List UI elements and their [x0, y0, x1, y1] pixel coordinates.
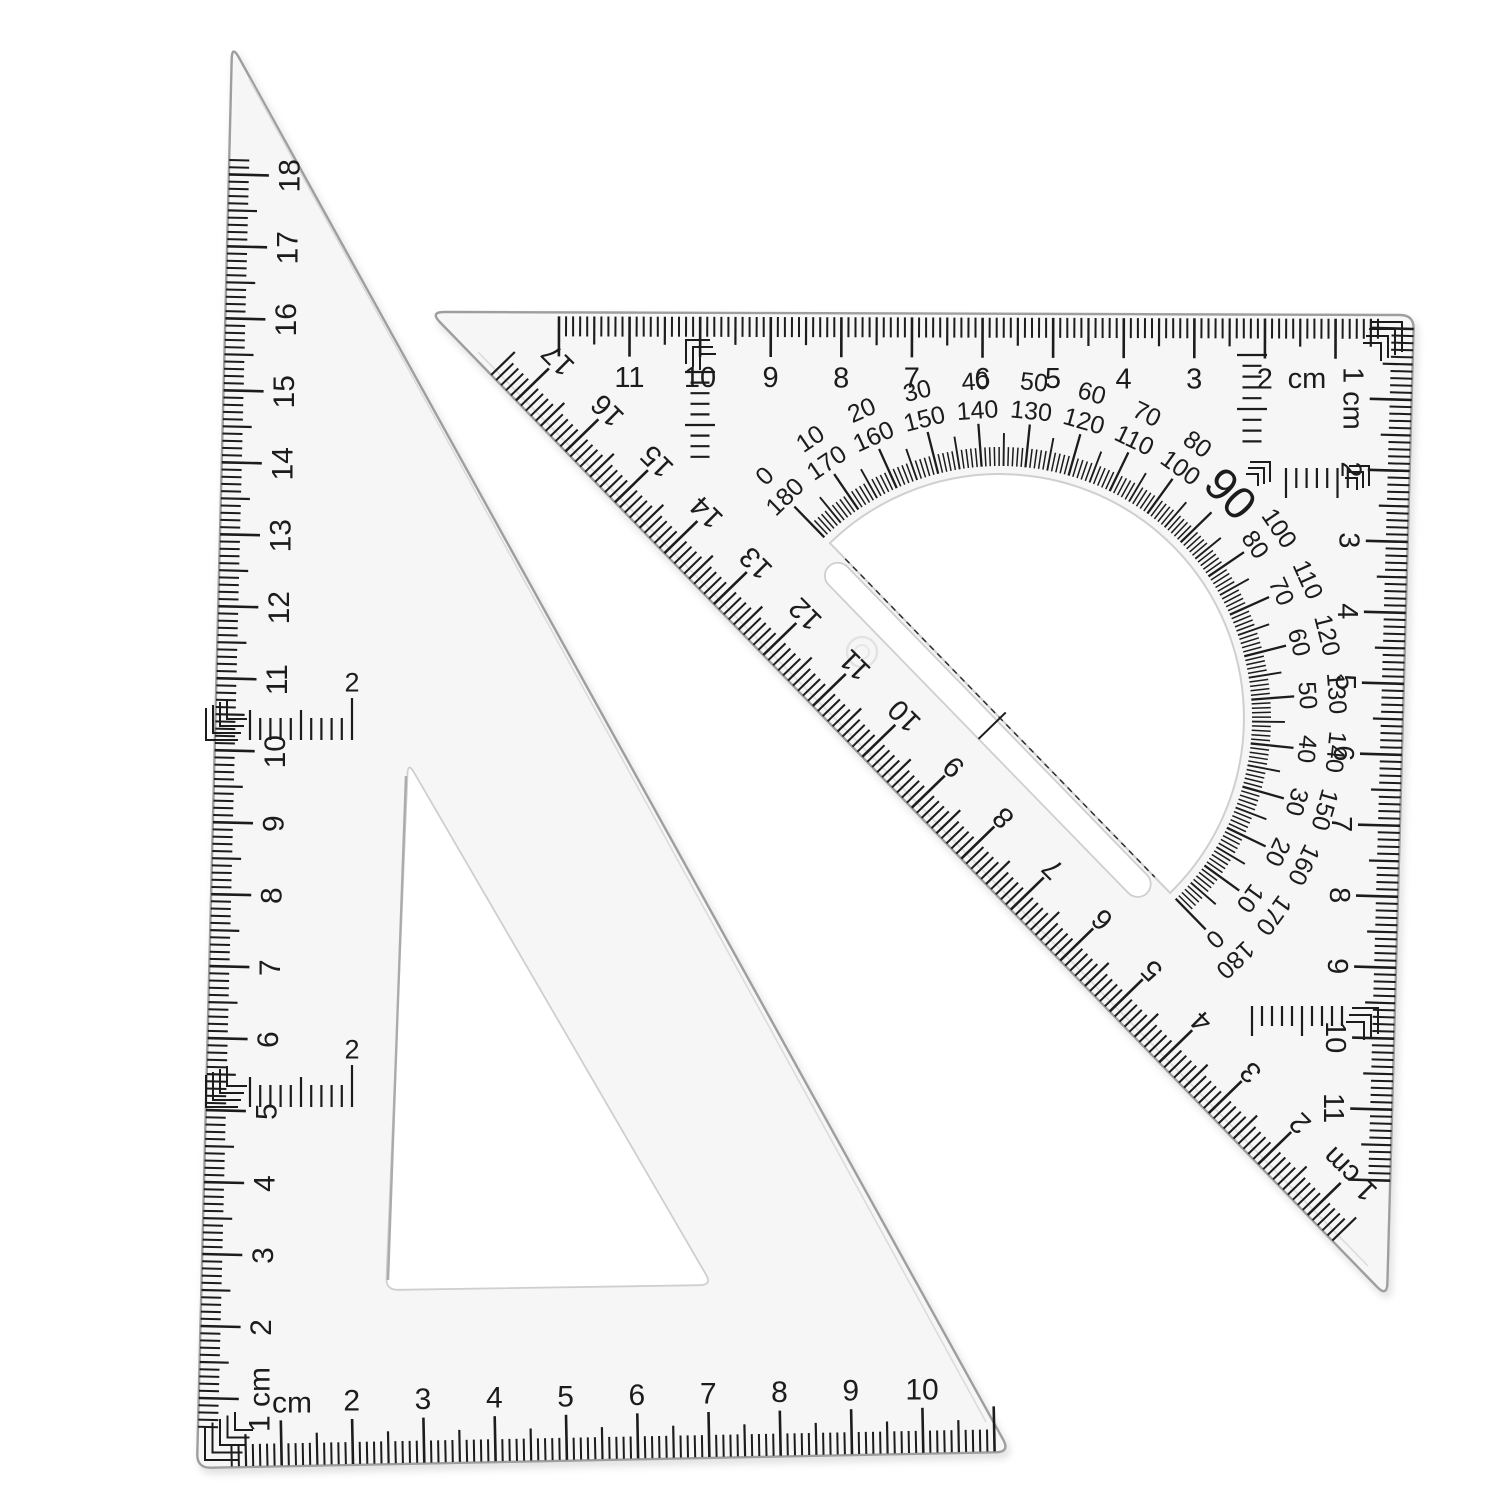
scale-number: 4	[1116, 363, 1132, 395]
scale-number: 3	[1333, 532, 1365, 548]
degree-label-outer: 140	[1319, 730, 1351, 774]
scale-number: 18	[273, 159, 306, 192]
degree-label-inner: 50	[1292, 681, 1322, 711]
scale-number: 11	[614, 362, 644, 394]
scale-number: 3	[247, 1247, 280, 1264]
scale-number: 9	[258, 815, 291, 832]
inner-scale-label: 2	[344, 1034, 359, 1064]
degree-label-outer: 50	[1019, 367, 1049, 398]
set-squares-photo: 1 cm234567891011121314151617182345678910…	[0, 0, 1500, 1500]
scale-number: 5	[557, 1380, 574, 1413]
scale-number: 8	[771, 1376, 788, 1409]
degree-label-outer: 40	[960, 367, 990, 397]
degree-label-outer: 130	[1321, 672, 1352, 716]
scale-number: 9	[842, 1375, 859, 1408]
scale-number: 16	[270, 303, 303, 336]
scale-number: 10	[905, 1373, 938, 1406]
scale-number: 10	[259, 735, 292, 768]
scale-number: 2	[245, 1319, 278, 1336]
scale-number: 9	[1321, 958, 1353, 974]
scale-number: 6	[252, 1031, 285, 1048]
scale-number: 11	[261, 664, 294, 695]
scale-number: 3	[415, 1383, 432, 1416]
scale-number: 8	[256, 887, 289, 904]
scale-number: 9	[763, 362, 779, 394]
scale-number: 8	[1323, 887, 1355, 903]
scale-number: 15	[268, 375, 301, 408]
scale-number: 2	[343, 1385, 360, 1418]
scale-number: 2	[1335, 461, 1367, 477]
scale-number: 8	[833, 362, 849, 394]
scale-number: 10	[1319, 1021, 1351, 1053]
scale-number: 4	[486, 1382, 503, 1415]
scale-number: 1 cm	[1337, 367, 1369, 430]
scale-number: 13	[265, 519, 298, 552]
scale-number: 2	[1257, 364, 1273, 396]
scale-number: 11	[1317, 1093, 1349, 1123]
degree-label-inner: 140	[956, 395, 1000, 426]
degree-label-inner: 40	[1291, 734, 1322, 764]
inner-scale-label: 2	[344, 667, 359, 697]
scale-number: 4	[249, 1175, 282, 1192]
scale-number: 7	[700, 1378, 717, 1411]
degree-label-inner: 130	[1009, 395, 1053, 427]
bottom-ruler-unit: cm	[272, 1387, 312, 1420]
scale-number: 17	[272, 231, 305, 264]
scale-number: 12	[263, 591, 296, 624]
scale-number: 6	[629, 1379, 646, 1412]
scale-number: 5	[250, 1103, 283, 1120]
scale-number: 3	[1186, 363, 1202, 395]
scale-number: 14	[266, 447, 299, 480]
scale-number: 7	[254, 959, 287, 976]
photo-canvas: 1 cm234567891011121314151617182345678910…	[0, 0, 1500, 1500]
top-ruler-unit: cm	[1288, 363, 1327, 395]
